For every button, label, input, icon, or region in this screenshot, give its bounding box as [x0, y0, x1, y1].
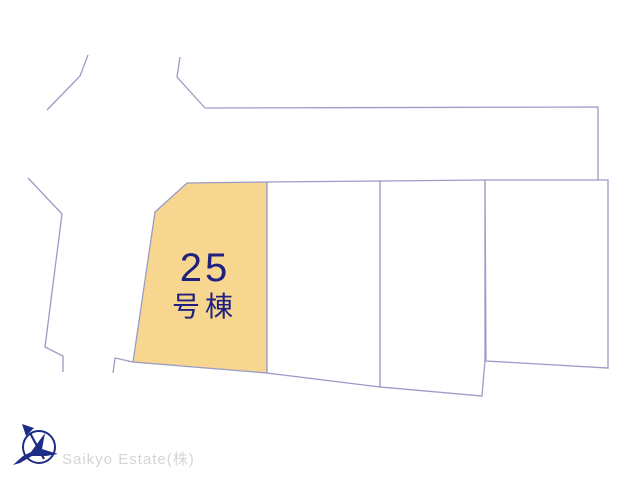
- road-edge-top-left: [47, 55, 88, 110]
- lot-25-shape: [133, 182, 267, 373]
- lot-shape-2: [267, 181, 380, 387]
- road-edge-lower-left: [113, 358, 133, 373]
- site-plan: 25 号棟 Saikyo Estate(株): [0, 0, 640, 480]
- road-edge-left: [28, 178, 63, 372]
- site-plan-drawing: [0, 0, 640, 480]
- lot-shape-4: [485, 180, 608, 368]
- upper-parcel-boundary: [205, 107, 598, 180]
- footer: Saikyo Estate(株): [0, 418, 640, 480]
- road-edge-top-center: [177, 57, 205, 108]
- bird-compass-logo-icon: [12, 422, 64, 470]
- company-watermark: Saikyo Estate(株): [62, 448, 195, 469]
- lot-shape-3: [380, 180, 485, 396]
